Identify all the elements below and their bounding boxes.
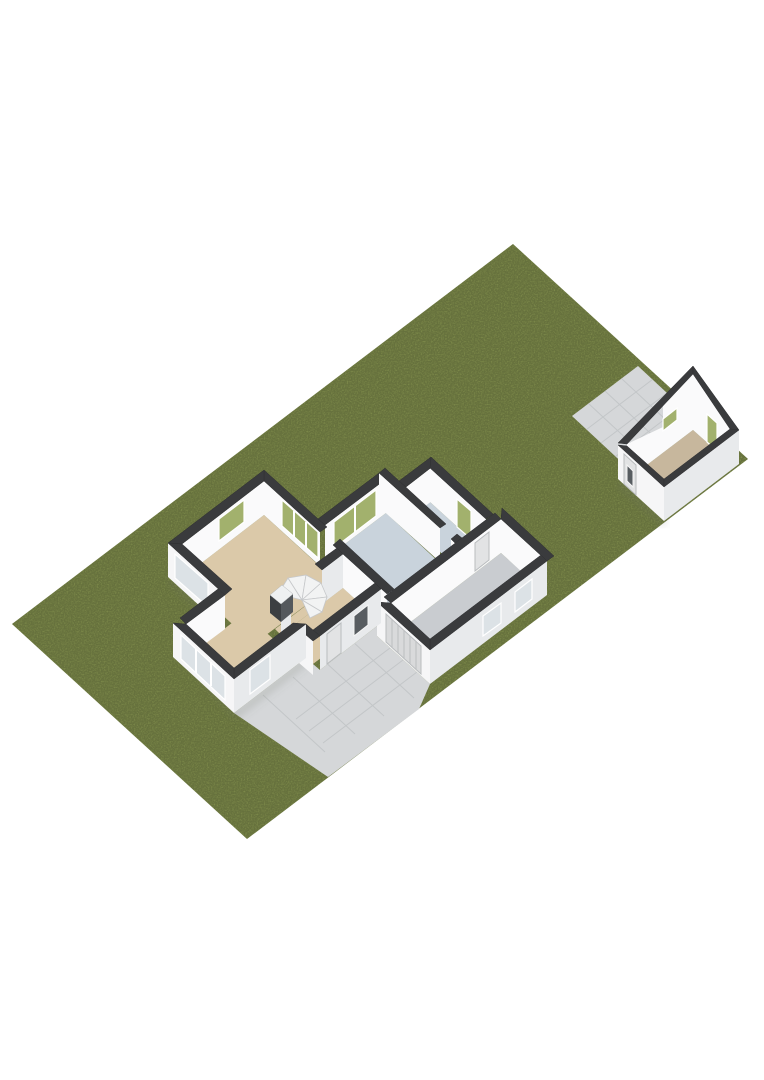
floorplan-3d-scene: [0, 0, 764, 1080]
